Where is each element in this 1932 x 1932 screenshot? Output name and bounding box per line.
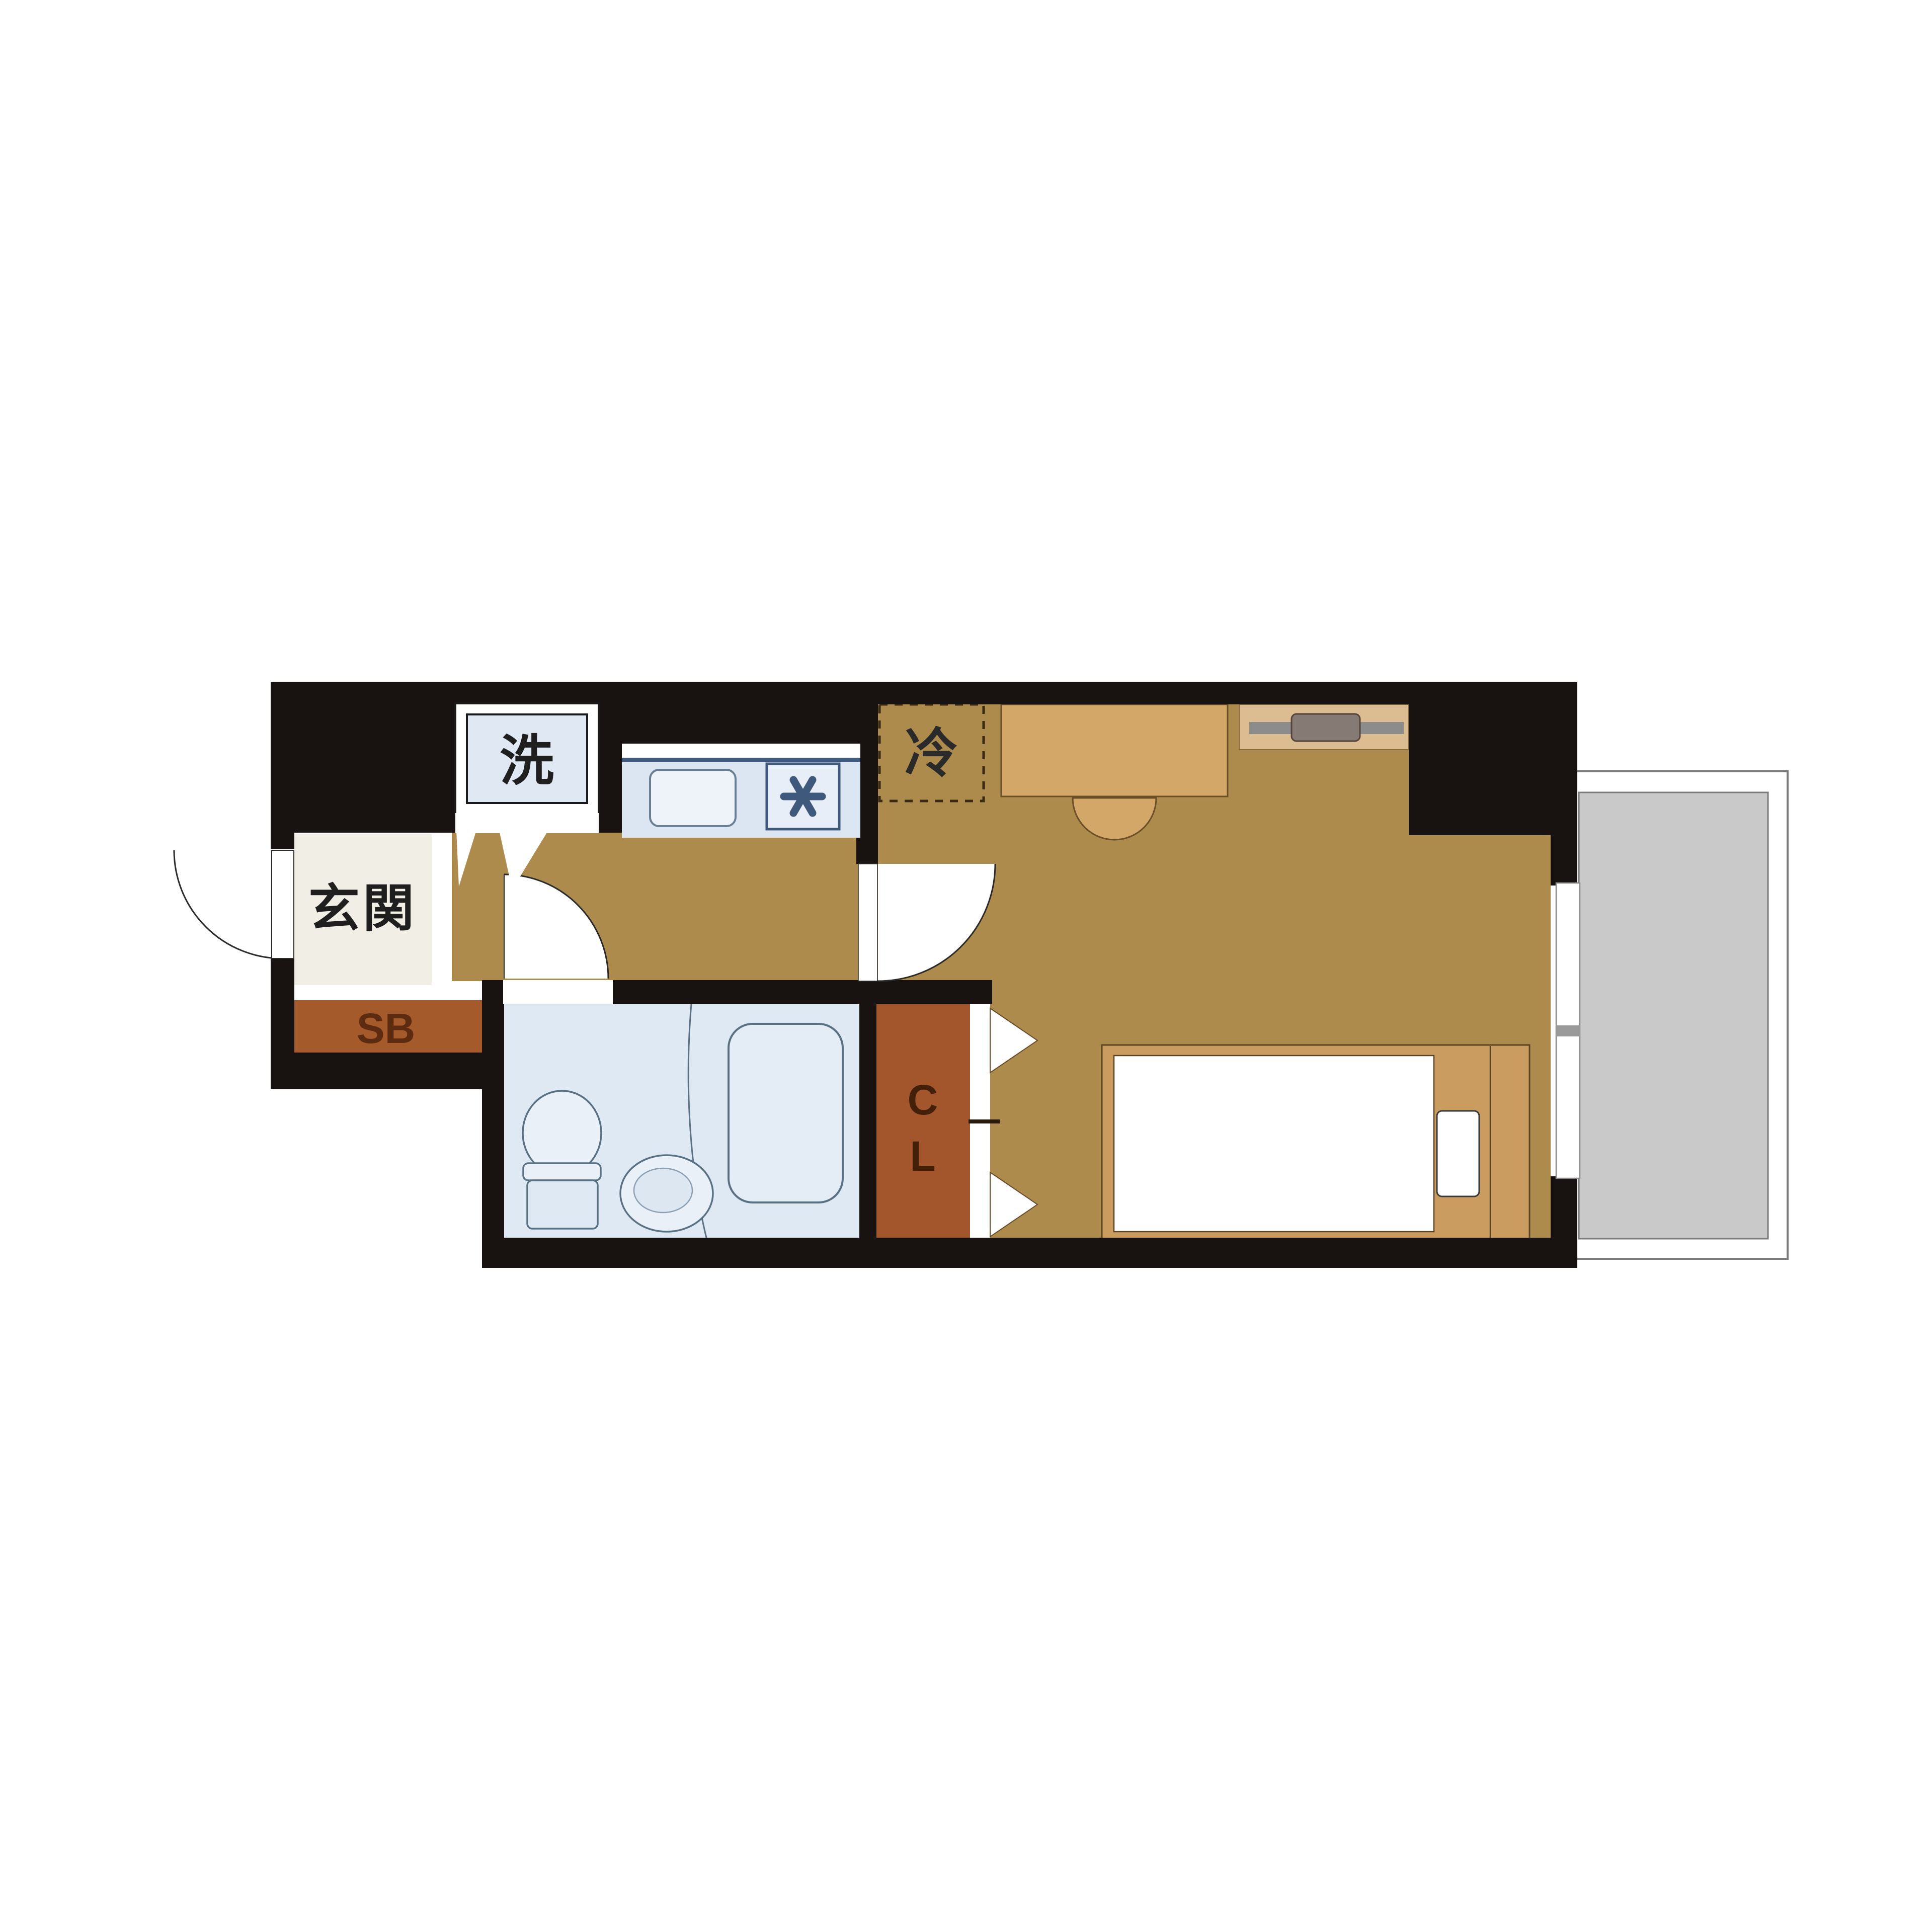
hanger-rail-handle (1292, 714, 1360, 741)
closet-door-divider (969, 1119, 1000, 1123)
washer-label: 洗 (500, 731, 554, 791)
entrance-label: 玄関 (308, 880, 417, 937)
wall-top-right-block (1409, 682, 1577, 835)
bed-mattress (1114, 1056, 1434, 1232)
wall-bottom (482, 1238, 1577, 1268)
toilet (523, 1091, 601, 1229)
wall-bath-closet (859, 980, 876, 1268)
wall-bath-left (482, 980, 504, 1268)
entry-door (174, 850, 294, 958)
entry-door-swing (174, 850, 282, 958)
window-balcony (1556, 883, 1580, 1178)
floor-plan-canvas: 洗 玄関 SB 冷 C L (0, 0, 1932, 1932)
room-door-leaf (858, 864, 877, 981)
entry-door-leaf (272, 850, 294, 958)
closet-label-c: C (908, 1076, 938, 1123)
balcony-floor (1579, 792, 1768, 1239)
balcony (1560, 771, 1788, 1259)
wall-right-upper (1551, 835, 1577, 886)
wall-left-upper (271, 682, 294, 849)
kitchen-counter (622, 744, 860, 838)
bed-pillow (1437, 1111, 1479, 1196)
wall-top (878, 682, 1409, 704)
kitchen-sink (650, 770, 736, 826)
wash-basin (620, 1155, 713, 1232)
bathtub (729, 1024, 843, 1202)
shoe-box-label: SB (357, 1005, 416, 1052)
wall-right-lower (1551, 1176, 1577, 1268)
refrigerator-label: 冷 (905, 724, 958, 783)
bed (1102, 1045, 1530, 1243)
entrance-threshold (432, 834, 453, 985)
wall-bottom-left (271, 1053, 504, 1089)
bathroom-doorway (503, 980, 613, 1004)
closet-label-l: L (910, 1133, 935, 1180)
floor-plan-page: 洗 玄関 SB 冷 C L (0, 0, 1932, 1932)
window-sash-meeting (1556, 1025, 1580, 1036)
desk (1001, 704, 1228, 796)
